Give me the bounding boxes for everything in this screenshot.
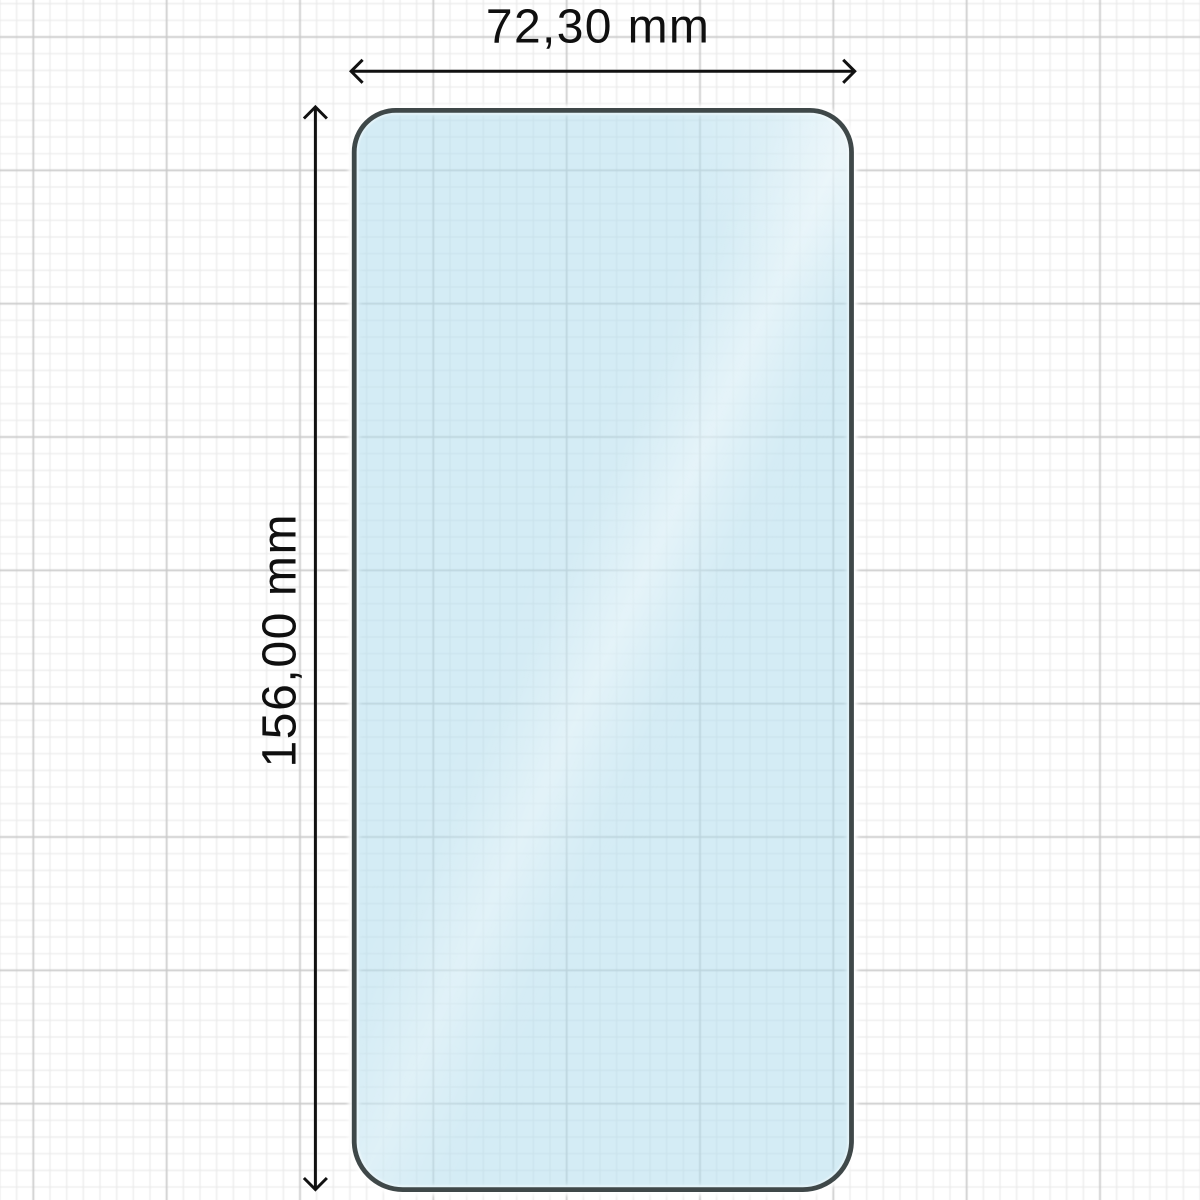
svg-text:156,00 mm: 156,00 mm xyxy=(254,515,307,768)
svg-text:72,30 mm: 72,30 mm xyxy=(486,0,709,53)
